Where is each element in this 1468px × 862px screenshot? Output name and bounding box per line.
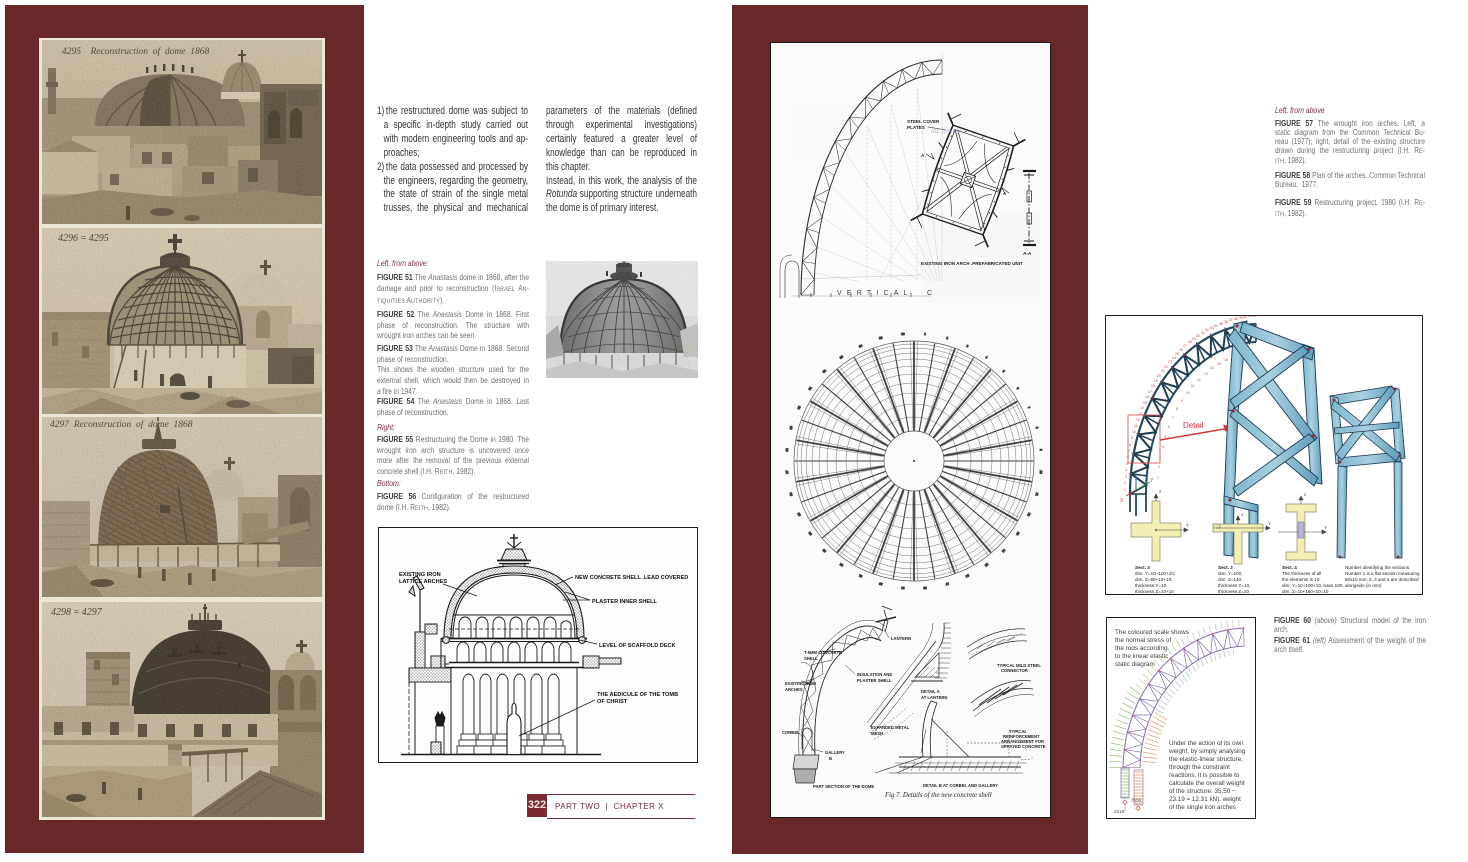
svg-text:EXISTING IRON: EXISTING IRON bbox=[399, 572, 441, 578]
svg-text:static diagram: static diagram bbox=[1115, 661, 1155, 668]
svg-text:1: 1 bbox=[1124, 488, 1126, 492]
svg-text:12: 12 bbox=[1197, 378, 1201, 382]
svg-text:21: 21 bbox=[1161, 369, 1165, 373]
svg-text:ARCHES: ARCHES bbox=[785, 687, 803, 692]
svg-text:Detail: Detail bbox=[1183, 421, 1204, 430]
svg-text:LEVEL OF SCAFFOLD DECK: LEVEL OF SCAFFOLD DECK bbox=[599, 643, 676, 649]
svg-text:dim. Y=10+100+10,: dim. Y=10+100+10, bbox=[1135, 571, 1175, 576]
svg-text:2: 2 bbox=[1158, 465, 1160, 469]
svg-text:through the constraint: through the constraint bbox=[1169, 764, 1230, 771]
svg-text:42: 42 bbox=[1253, 316, 1257, 318]
svg-text:the elements is 10;: the elements is 10; bbox=[1282, 577, 1321, 582]
svg-text:X: X bbox=[1120, 498, 1124, 504]
svg-text:4: 4 bbox=[1125, 468, 1127, 472]
svg-text:T-5MM CONCRETE: T-5MM CONCRETE bbox=[804, 650, 842, 655]
svg-text:OF CHRIST: OF CHRIST bbox=[597, 699, 628, 705]
svg-text:z: z bbox=[1304, 492, 1307, 497]
svg-text:DETAIL A: DETAIL A bbox=[921, 689, 940, 694]
svg-text:23.19 = 12.31 kN), weight: 23.19 = 12.31 kN), weight bbox=[1169, 796, 1241, 803]
svg-text:34: 34 bbox=[1214, 324, 1218, 328]
svg-text:SPRAYED CONCRETE: SPRAYED CONCRETE bbox=[1001, 744, 1046, 749]
svg-text:27: 27 bbox=[1183, 344, 1187, 348]
svg-text:30: 30 bbox=[1196, 334, 1200, 338]
svg-text:EXPANDED METAL: EXPANDED METAL bbox=[871, 725, 910, 730]
svg-text:35: 35 bbox=[1219, 322, 1223, 326]
svg-text:9: 9 bbox=[1181, 399, 1183, 403]
svg-text:LANTERN: LANTERN bbox=[891, 636, 911, 641]
svg-text:NEW CONCRETE SHELL .LEAD COVER: NEW CONCRETE SHELL .LEAD COVERED bbox=[575, 575, 688, 581]
svg-text:The coloured scale shows: The coloured scale shows bbox=[1115, 629, 1189, 636]
svg-text:Sect. 3: Sect. 3 bbox=[1135, 565, 1150, 570]
svg-text:The thickness of all: The thickness of all bbox=[1282, 571, 1321, 576]
svg-text:THE AEDICULE OF THE TOMB: THE AEDICULE OF THE TOMB bbox=[597, 692, 678, 698]
svg-text:40: 40 bbox=[1243, 316, 1247, 319]
svg-text:1: 1 bbox=[1157, 476, 1159, 480]
svg-text:PLATES: PLATES bbox=[907, 125, 925, 130]
svg-text:VERTICAL C: VERTICAL C bbox=[837, 290, 937, 297]
svg-text:3: 3 bbox=[1125, 475, 1127, 479]
svg-text:16: 16 bbox=[1224, 358, 1228, 362]
svg-text:Y: Y bbox=[1324, 525, 1327, 530]
svg-text:13: 13 bbox=[1204, 372, 1208, 376]
svg-text:Fig 7. Details of the new conc: Fig 7. Details of the new concrete shell bbox=[884, 792, 992, 799]
svg-text:SHELL: SHELL bbox=[804, 656, 818, 661]
svg-text:38: 38 bbox=[1234, 317, 1238, 321]
svg-text:dim. Y=100,: dim. Y=100, bbox=[1218, 571, 1243, 576]
svg-text:weight, by simply analysing: weight, by simply analysing bbox=[1168, 748, 1246, 755]
svg-text:6: 6 bbox=[1168, 425, 1170, 429]
svg-text:24: 24 bbox=[1172, 356, 1176, 360]
svg-text:60x10 mm; 2, 3 and 4 are descr: 60x10 mm; 2, 3 and 4 are described bbox=[1345, 577, 1419, 582]
svg-text:25: 25 bbox=[1175, 352, 1179, 356]
svg-text:thickness Z=10+10: thickness Z=10+10 bbox=[1135, 589, 1174, 594]
svg-text:11: 11 bbox=[1134, 424, 1138, 428]
svg-text:3550: 3550 bbox=[1131, 798, 1142, 803]
svg-text:37: 37 bbox=[1229, 318, 1233, 322]
svg-text:B: B bbox=[829, 756, 832, 761]
svg-text:22: 22 bbox=[1164, 365, 1168, 369]
svg-text:dim. Z=10+160+10=10: dim. Z=10+160+10=10 bbox=[1282, 589, 1329, 594]
svg-text:int. freccia: int. freccia bbox=[931, 127, 962, 135]
svg-text:Sect. 2: Sect. 2 bbox=[1218, 565, 1233, 570]
svg-text:26: 26 bbox=[1179, 348, 1183, 352]
svg-text:Sect. 4: Sect. 4 bbox=[1282, 565, 1297, 570]
svg-text:32: 32 bbox=[1205, 328, 1209, 332]
svg-text:17: 17 bbox=[1148, 390, 1152, 394]
svg-text:36: 36 bbox=[1224, 320, 1228, 324]
svg-text:11: 11 bbox=[1191, 384, 1195, 388]
svg-text:2319: 2319 bbox=[1114, 809, 1125, 814]
svg-text:15: 15 bbox=[1217, 362, 1221, 366]
svg-text:15: 15 bbox=[1143, 401, 1147, 405]
svg-text:23: 23 bbox=[1168, 360, 1172, 364]
svg-text:Number identifying the section: Number identifying the sections. bbox=[1345, 565, 1410, 570]
svg-text:10: 10 bbox=[1186, 391, 1190, 395]
svg-text:EXISTING IRON: EXISTING IRON bbox=[785, 681, 816, 686]
svg-text:dim. Z=60+10+10,: dim. Z=60+10+10, bbox=[1135, 577, 1172, 582]
svg-text:18: 18 bbox=[1151, 384, 1155, 388]
svg-text:thickness Y=10,: thickness Y=10, bbox=[1218, 583, 1250, 588]
svg-text:41: 41 bbox=[1248, 316, 1252, 318]
svg-text:9: 9 bbox=[1131, 436, 1133, 440]
svg-text:8: 8 bbox=[1129, 443, 1131, 447]
svg-text:AT LANTERN: AT LANTERN bbox=[921, 695, 947, 700]
svg-text:dim. Z=140,: dim. Z=140, bbox=[1218, 577, 1242, 582]
svg-text:the normal stress of: the normal stress of bbox=[1115, 637, 1171, 644]
svg-text:19: 19 bbox=[1154, 379, 1158, 383]
svg-text:z: z bbox=[1241, 512, 1244, 517]
svg-text:Number 1 is a flat section mea: Number 1 is a flat section measuring bbox=[1345, 571, 1420, 576]
svg-text:12: 12 bbox=[1136, 418, 1140, 422]
svg-text:CONNECTOR: CONNECTOR bbox=[1001, 668, 1028, 673]
svg-text:Y: Y bbox=[1150, 478, 1154, 484]
svg-text:16: 16 bbox=[1145, 395, 1149, 399]
svg-text:10: 10 bbox=[1132, 430, 1136, 434]
svg-text:PART SECTION OF THE DOME: PART SECTION OF THE DOME bbox=[813, 784, 874, 789]
svg-text:PLASTER INNER SHELL: PLASTER INNER SHELL bbox=[592, 599, 658, 605]
svg-text:4: 4 bbox=[1162, 445, 1164, 449]
svg-text:thickness Z=20: thickness Z=20 bbox=[1218, 589, 1249, 594]
svg-text:Y: Y bbox=[1186, 523, 1189, 528]
svg-text:7: 7 bbox=[1172, 416, 1174, 420]
svg-text:14: 14 bbox=[1210, 366, 1214, 370]
svg-text:INSULATION AND: INSULATION AND bbox=[857, 672, 892, 677]
svg-text:the rods according: the rods according bbox=[1115, 645, 1168, 652]
svg-text:of the structure: 35.50 −: of the structure: 35.50 − bbox=[1169, 788, 1236, 795]
svg-text:z: z bbox=[1159, 489, 1162, 494]
svg-text:Under the action of its own: Under the action of its own bbox=[1169, 740, 1244, 747]
svg-text:GALLERY: GALLERY bbox=[825, 750, 845, 755]
svg-text:Y: Y bbox=[1268, 521, 1271, 526]
svg-text:reactions, it is possible to: reactions, it is possible to bbox=[1169, 772, 1240, 779]
svg-text:dim. Y=10+100+10, base 100,: dim. Y=10+100+10, base 100, bbox=[1282, 583, 1344, 588]
svg-text:LATTICE ARCHES: LATTICE ARCHES bbox=[399, 579, 447, 585]
svg-text:thickness Y=10,: thickness Y=10, bbox=[1135, 583, 1167, 588]
svg-text:EXISTING IRON ARCH .PREFABRICA: EXISTING IRON ARCH .PREFABRICATED UNIT bbox=[921, 261, 1023, 266]
svg-text:20: 20 bbox=[1157, 374, 1161, 378]
svg-text:STEEL COVER: STEEL COVER bbox=[907, 119, 940, 124]
svg-text:alongside (in mm): alongside (in mm) bbox=[1345, 583, 1382, 588]
svg-text:the elastic-linear structure,: the elastic-linear structure, bbox=[1169, 756, 1243, 763]
svg-text:of the single iron arches: of the single iron arches bbox=[1169, 804, 1236, 811]
svg-text:MESH: MESH bbox=[871, 731, 883, 736]
svg-text:A-A: A-A bbox=[1023, 251, 1032, 257]
svg-text:PLASTER SHELL: PLASTER SHELL bbox=[857, 678, 892, 683]
svg-text:8: 8 bbox=[1176, 407, 1178, 411]
svg-text:2: 2 bbox=[1124, 481, 1126, 485]
svg-text:14: 14 bbox=[1140, 406, 1144, 410]
svg-text:DETAIL B AT CORBEL AND GALLERY: DETAIL B AT CORBEL AND GALLERY bbox=[923, 783, 998, 788]
svg-text:calculate the overall weight: calculate the overall weight bbox=[1169, 780, 1245, 787]
